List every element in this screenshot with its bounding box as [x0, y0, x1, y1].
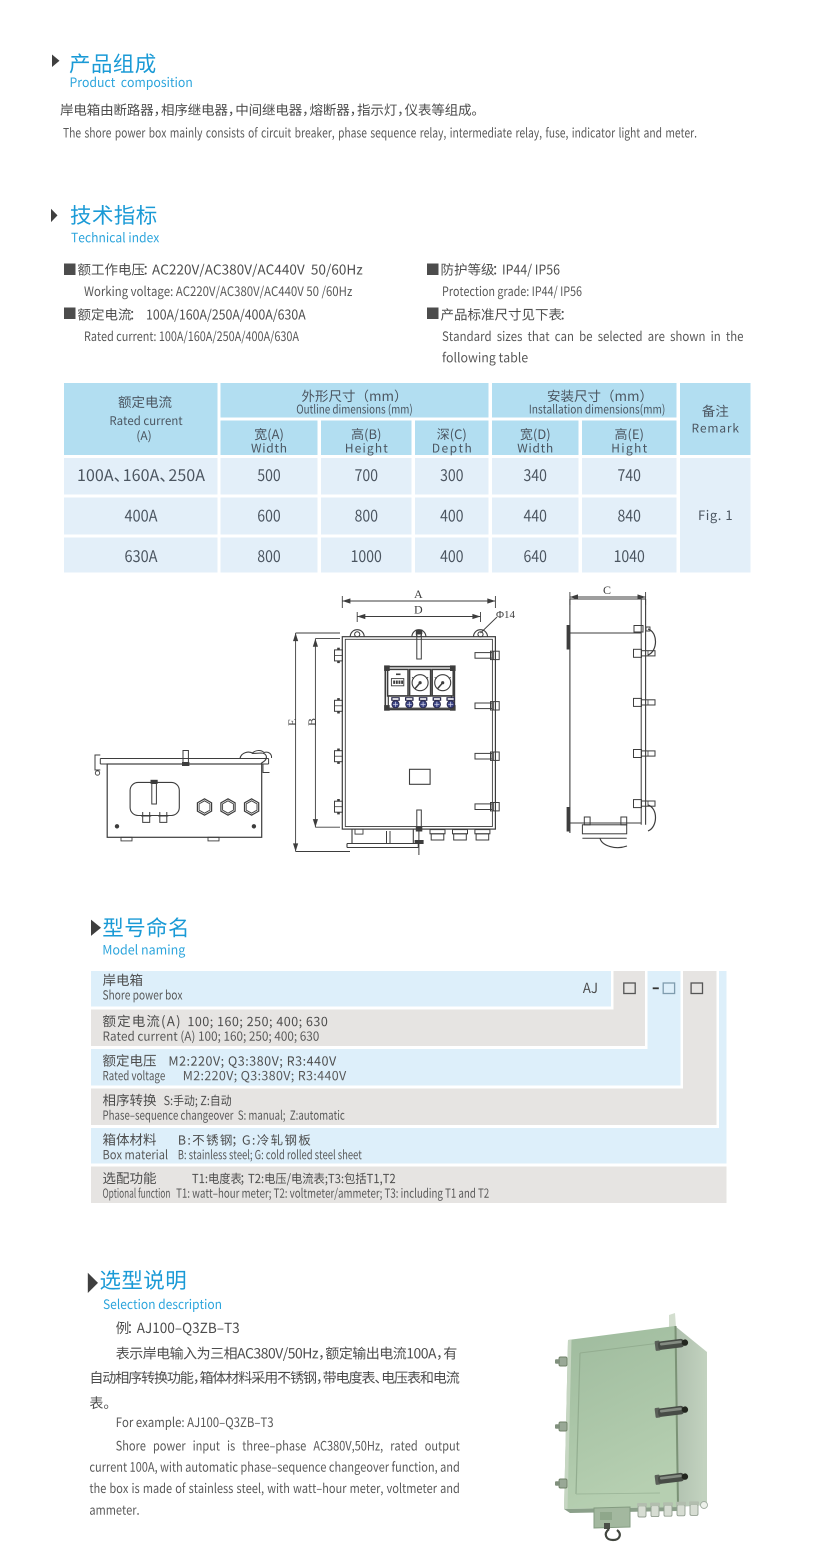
svg-text:A: A [414, 587, 423, 601]
svg-text:C: C [603, 583, 611, 597]
svg-text:Φ14: Φ14 [496, 609, 516, 621]
svg-text:B: B [305, 718, 319, 726]
svg-text:D: D [414, 603, 423, 617]
svg-text:E: E [285, 719, 299, 726]
